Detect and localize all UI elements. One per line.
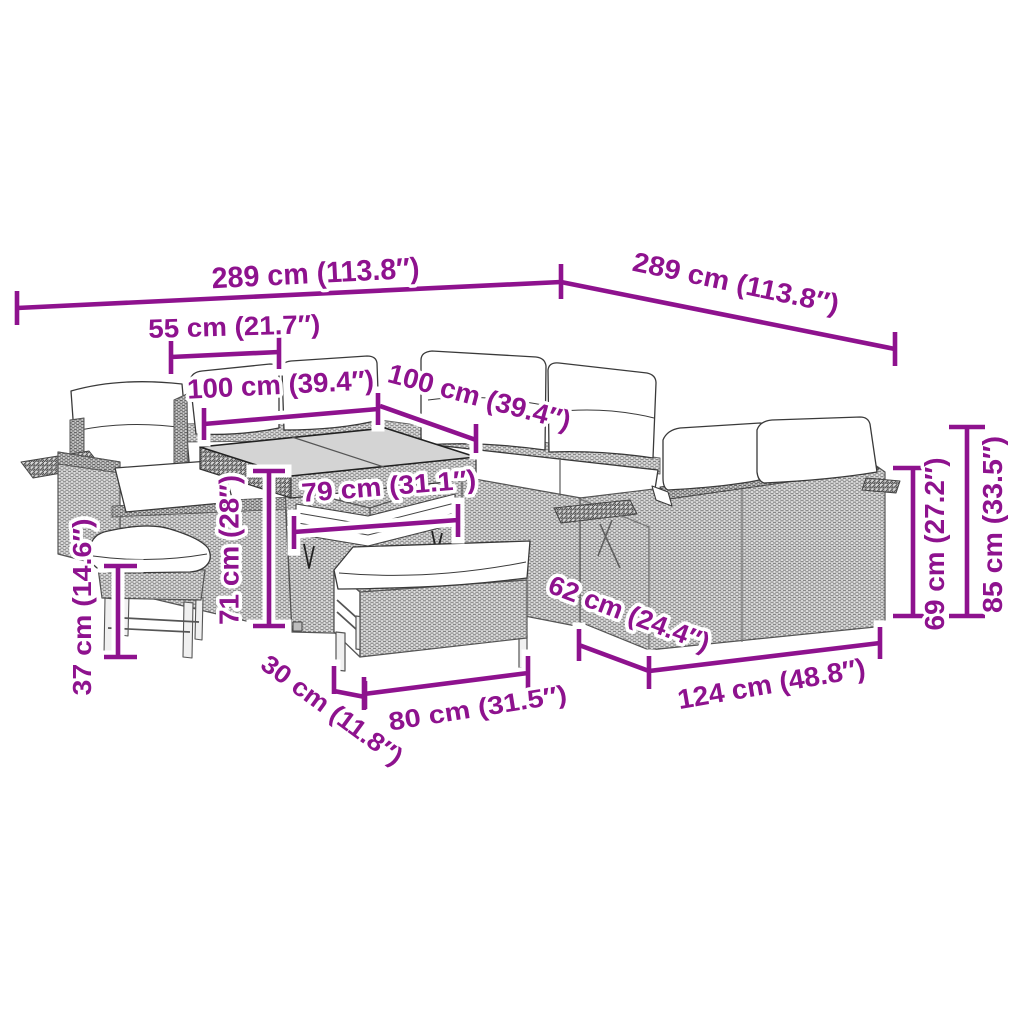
- svg-text:69 cm (27.2″): 69 cm (27.2″): [919, 458, 950, 631]
- svg-text:85 cm (33.5″): 85 cm (33.5″): [977, 436, 1008, 613]
- svg-text:71 cm (28″): 71 cm (28″): [214, 475, 245, 625]
- svg-text:37 cm (14.6″): 37 cm (14.6″): [67, 519, 97, 696]
- svg-text:55 cm (21.7″): 55 cm (21.7″): [148, 309, 321, 344]
